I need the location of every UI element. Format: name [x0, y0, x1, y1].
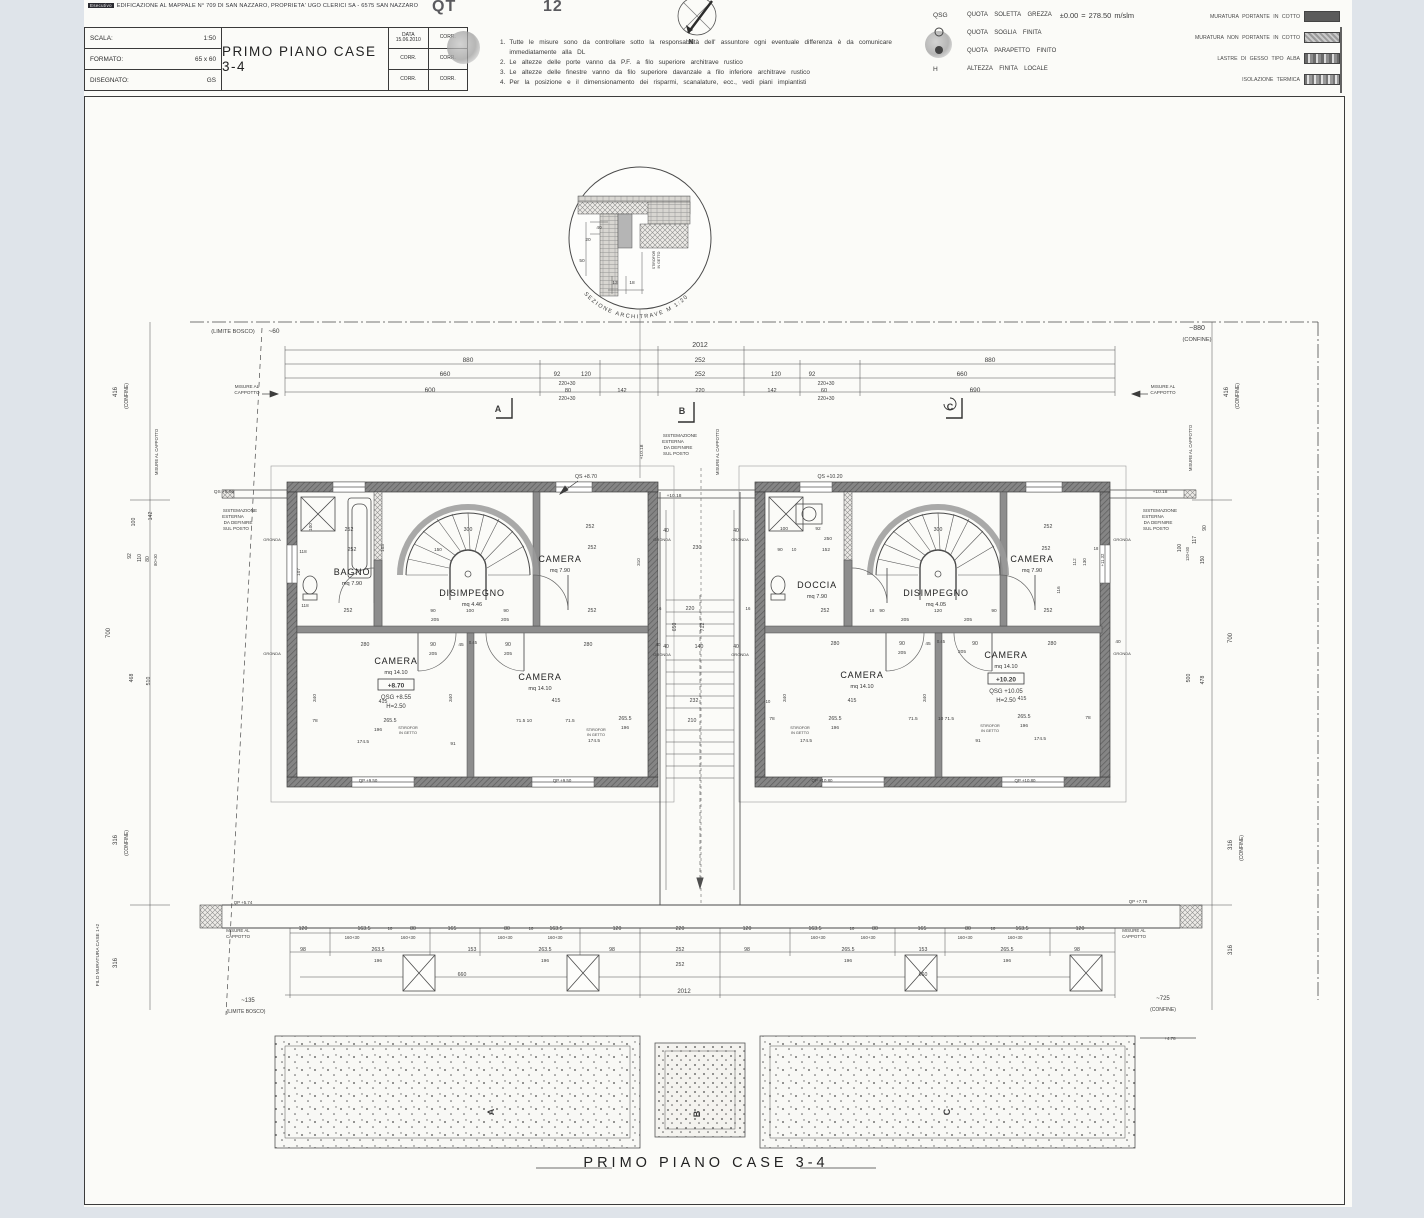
- plan-label: 280: [1048, 641, 1057, 647]
- plan-label: 90: [503, 608, 509, 614]
- plan-label: GRONDA: [653, 537, 671, 542]
- plan-label: 205: [964, 617, 972, 623]
- room-name: BAGNO: [334, 567, 371, 577]
- plan-label: ~880: [1189, 325, 1205, 332]
- plan-label: 252: [1044, 524, 1053, 530]
- plan-label: 280: [584, 642, 593, 648]
- plan-label: C: [942, 1108, 952, 1115]
- plan-label: 40: [733, 528, 739, 534]
- room-area: mq 7.90: [550, 568, 570, 574]
- plan-label: IN GETTO: [587, 733, 605, 737]
- plan-label: 478: [1200, 676, 1206, 685]
- plan-label: 153: [468, 947, 477, 953]
- plan-label: 700: [106, 627, 112, 638]
- plan-label: QP +10.80: [1014, 778, 1036, 783]
- plan-label: 252: [588, 545, 597, 551]
- plan-label: 265.5: [842, 947, 855, 953]
- plan-label: 150: [1200, 556, 1206, 565]
- plan-label: 90: [1202, 525, 1208, 531]
- plan-label: 252: [586, 524, 595, 530]
- plan-label: 316: [1228, 944, 1234, 955]
- floor-plan-drawing: SEZIONE ARCHITRAVE M 1:20: [0, 0, 1424, 1218]
- quota-value: +10.20: [996, 677, 1016, 684]
- plan-label: 71.5: [908, 716, 918, 722]
- room-name: DOCCIA: [797, 580, 837, 590]
- plan-label: 120: [743, 926, 752, 932]
- plan-label: 18: [629, 280, 635, 286]
- plan-label: ~725: [1156, 996, 1170, 1002]
- plan-label: 103: [380, 544, 385, 552]
- plan-label: 252: [348, 547, 357, 553]
- height-value: H=2.50: [386, 704, 406, 710]
- plan-label: 10: [766, 699, 771, 704]
- plan-label: 92: [815, 526, 821, 532]
- plan-label: +10.18: [667, 493, 682, 499]
- scanner-edge-bottom: [0, 1207, 1424, 1218]
- plan-label: 142: [767, 388, 776, 394]
- plan-label: (CONFINE): [1150, 1007, 1176, 1013]
- plan-label: 252: [676, 962, 685, 968]
- plan-label: STIROFOR: [980, 724, 1000, 728]
- plan-label: 10: [850, 926, 855, 931]
- plan-label: 196: [541, 958, 549, 964]
- plan-label: 118: [299, 549, 307, 554]
- plan-label: 163.5: [1016, 926, 1029, 932]
- plan-label: 0.45: [937, 639, 946, 644]
- footer-caption-group: PRIMO PIANO CASE 3-4: [536, 1155, 876, 1171]
- plan-label: 153: [919, 947, 928, 953]
- plan-label: GRONDA: [731, 652, 749, 657]
- plan-label: 468: [129, 674, 135, 683]
- plan-label: 80: [410, 926, 416, 932]
- leader-arrows: [262, 391, 1148, 494]
- plan-label: 650: [672, 623, 678, 632]
- scanner-edge-right: [1352, 0, 1424, 1218]
- scanner-edge-left: [0, 0, 84, 1218]
- plan-label: 163.5: [358, 926, 371, 932]
- plan-label: CAPPOTTO: [226, 934, 251, 939]
- plan-label: 340: [782, 694, 788, 702]
- plan-label: 220: [686, 606, 695, 612]
- plan-label: 300: [464, 527, 473, 533]
- plan-label: GRONDA: [1113, 537, 1131, 542]
- plan-label: N: [688, 39, 693, 46]
- plan-label: 660: [919, 972, 928, 978]
- plan-label: 120+30: [1185, 546, 1190, 561]
- plan-label: +10.18: [1153, 489, 1168, 495]
- plan-label: 340: [922, 694, 928, 702]
- plan-label: 174.5: [1034, 736, 1046, 742]
- plan-label: 80+30: [153, 553, 158, 565]
- plan-label: 71.5 10: [516, 718, 532, 724]
- plan-label: 110: [137, 554, 143, 562]
- plan-label: GRONDA: [1113, 651, 1131, 656]
- plan-label: 78: [1085, 715, 1091, 721]
- plan-label: 91: [975, 738, 981, 744]
- plan-label: 252: [821, 608, 830, 614]
- plan-label: +10.18: [639, 444, 645, 459]
- plan-label: DA DEFINIRE: [224, 520, 253, 525]
- plan-label: MISURE AL: [226, 928, 250, 933]
- plan-label: QP +10.80: [811, 778, 833, 783]
- plan-label: DA DEFINIRE: [1144, 520, 1173, 525]
- plan-label: 10 71.5: [938, 716, 954, 722]
- plan-label: 120: [581, 372, 592, 378]
- room-area: mq 14.10: [850, 684, 873, 690]
- room-area: mq 14.10: [528, 686, 551, 692]
- plan-label: ESTERNA: [222, 514, 245, 519]
- plan-label: 205: [429, 651, 437, 657]
- plan-label: 196: [621, 725, 629, 731]
- plan-label: 2012: [677, 989, 691, 995]
- plan-label: 660: [440, 371, 451, 378]
- plan-label: 100: [1177, 544, 1183, 553]
- plan-label: (CONFINE): [1183, 337, 1212, 343]
- plan-label: QP +9.50: [553, 778, 572, 783]
- plan-label: 80: [145, 556, 151, 562]
- plan-label: QS +8.70: [575, 474, 597, 480]
- plan-label: 40: [1115, 639, 1121, 645]
- plan-label: 205: [901, 617, 909, 623]
- plan-label: 10: [388, 926, 393, 931]
- plan-label: 92: [809, 372, 816, 378]
- plan-label: 120: [299, 926, 308, 932]
- plan-label: 205: [504, 651, 512, 657]
- plan-label: 252: [588, 608, 597, 614]
- plan-label: 98: [300, 947, 306, 953]
- drawing-frame: [85, 27, 1345, 1205]
- plan-label: IN GETTO: [981, 729, 999, 733]
- plan-label: 150: [434, 547, 442, 552]
- plan-label: MISURE AL CAPPOTTO: [715, 428, 720, 475]
- plan-label: 163.5: [809, 926, 822, 932]
- plan-label: +4.78: [1164, 1036, 1176, 1041]
- architrave-detail: SEZIONE ARCHITRAVE M 1:20: [569, 167, 711, 478]
- plan-label: A: [486, 1108, 496, 1115]
- plan-label: 160+30: [811, 935, 826, 940]
- plan-label: 340: [312, 694, 318, 702]
- plan-label: 107: [296, 568, 301, 576]
- plan-label: 205: [501, 617, 509, 623]
- north-compass-icon: [678, 0, 716, 35]
- plan-label: 280: [831, 641, 840, 647]
- plan-label: 252: [1042, 546, 1051, 552]
- plan-label: IN GETTO: [657, 251, 661, 268]
- plan-label: 142: [148, 512, 154, 521]
- plan-label: 142: [617, 388, 626, 394]
- room-name: DISIMPEGNO: [439, 588, 505, 598]
- plan-label: 18: [870, 608, 875, 613]
- plan-label: 265.5: [619, 716, 632, 722]
- qsg-value: QSG +8.55: [381, 695, 412, 701]
- plan-label: 90: [991, 608, 997, 614]
- plan-label: B: [679, 406, 686, 416]
- plan-label: 415: [1018, 696, 1027, 702]
- plan-label: 263.5: [372, 947, 385, 953]
- house-casa-3: [287, 482, 658, 787]
- plan-label: 196: [1003, 958, 1011, 964]
- plan-label: ESTERNA: [662, 439, 685, 444]
- plan-label: 165: [448, 926, 457, 932]
- plan-label: 98: [609, 947, 615, 953]
- plan-label: 174.5: [800, 738, 812, 744]
- plan-label: 13: [612, 280, 618, 286]
- plan-label: 880: [985, 357, 996, 364]
- plan-label: 265.5: [384, 718, 397, 724]
- plan-label: QP +7.78: [1129, 899, 1148, 904]
- plan-label: 510: [146, 677, 152, 686]
- plan-label: 20: [585, 237, 591, 243]
- plan-label: IN GETTO: [399, 731, 417, 735]
- plan-label: 880: [463, 357, 474, 364]
- plan-label: GRONDA: [263, 651, 281, 656]
- plan-label: 500: [1186, 674, 1192, 683]
- plan-label: CAPPOTTO: [1122, 934, 1147, 939]
- plan-label: 90: [430, 642, 436, 648]
- plan-label: 163.5: [550, 926, 563, 932]
- room-name: CAMERA: [518, 672, 561, 682]
- plan-label: 78: [312, 718, 318, 724]
- plan-label: 416: [113, 386, 119, 397]
- plan-label: 205: [898, 650, 906, 656]
- plan-label: 232: [690, 698, 699, 704]
- room-area: mq 14.10: [384, 670, 407, 676]
- plan-label: (CONFINE): [1239, 835, 1245, 861]
- plan-label: 100: [466, 608, 474, 614]
- plan-label: 220+30: [818, 381, 835, 387]
- plan-label: 250: [824, 536, 832, 542]
- room-name: CAMERA: [840, 670, 883, 680]
- plan-label: 316: [113, 834, 119, 845]
- plan-label: 700: [1228, 632, 1234, 643]
- plan-label: 160+30: [401, 935, 416, 940]
- room-name: DISIMPEGNO: [903, 588, 969, 598]
- plan-label: 45: [458, 642, 464, 648]
- plan-label: 100: [308, 523, 313, 531]
- plan-label: 160+30: [958, 935, 973, 940]
- plan-label: 80: [565, 388, 571, 394]
- plan-label: 416: [1224, 386, 1230, 397]
- plan-label: (LIMITE BOSCO): [227, 1009, 266, 1015]
- plan-label: MISURE AL CAPPOTTO: [1188, 424, 1193, 471]
- room-area: mq 7.90: [807, 594, 827, 600]
- plan-label: 40: [596, 225, 602, 231]
- plan-label: 196: [374, 958, 382, 964]
- pergola-posts: [403, 955, 1102, 991]
- plan-label: CAPPOTTO: [234, 390, 260, 395]
- plan-label: 160+30: [345, 935, 360, 940]
- plan-label: 10: [529, 926, 534, 931]
- plan-label: 160+30: [498, 935, 513, 940]
- plan-label: FILO MURATURA CASE 1+2: [95, 923, 101, 986]
- plan-label: 50: [579, 258, 585, 264]
- plan-label: 600: [425, 387, 436, 394]
- interior-walls: [765, 492, 1102, 777]
- plan-label: QS +10.20: [818, 474, 843, 480]
- plan-label: 300: [934, 527, 943, 533]
- plan-label: 252: [344, 608, 353, 614]
- plan-label: 2012: [692, 342, 708, 349]
- section-markers: [470, 398, 991, 1117]
- plan-label: 265.5: [1018, 714, 1031, 720]
- room-area: mq 4.05: [926, 602, 946, 608]
- room-area: mq 4.46: [462, 602, 482, 608]
- plan-label: MISURE AL: [1122, 928, 1146, 933]
- plan-label: 252: [345, 527, 354, 533]
- plan-label: (CONFINE): [124, 383, 130, 409]
- plan-label: 40: [663, 644, 669, 650]
- plan-label: ESTERNA: [1142, 514, 1165, 519]
- plan-label: 263.5: [539, 947, 552, 953]
- plan-label: 316: [1228, 839, 1234, 850]
- plan-label: 230: [693, 545, 702, 551]
- plan-label: 220: [676, 926, 685, 932]
- plan-label: A: [495, 404, 502, 414]
- plan-label: 90: [879, 608, 885, 614]
- plan-label: 112: [1072, 558, 1077, 566]
- plan-label: 196: [1020, 723, 1028, 729]
- plan-label: 316: [113, 957, 119, 968]
- plan-label: 40: [733, 644, 739, 650]
- window: [287, 482, 594, 787]
- plan-label: 660: [957, 371, 968, 378]
- plan-label: SUL POSTO: [1143, 526, 1169, 531]
- terraces: [275, 1036, 1135, 1148]
- plan-label: 252: [676, 947, 685, 953]
- plan-label: 165: [918, 926, 927, 932]
- plan-label: GRONDA: [731, 537, 749, 542]
- plan-label: 80: [504, 926, 510, 932]
- plan-label: 90: [899, 641, 905, 647]
- plan-label: 91: [450, 741, 456, 747]
- plan-label: 100: [131, 518, 137, 527]
- plan-label: (CONFINE): [124, 830, 130, 856]
- plan-label: 117: [1192, 536, 1198, 544]
- plan-label: 90: [505, 642, 511, 648]
- plan-label: 196: [374, 727, 382, 733]
- plan-label: 265.5: [1001, 947, 1014, 953]
- plan-label: 16: [657, 606, 662, 611]
- plan-label: 90: [430, 608, 436, 614]
- plan-label: 78: [769, 716, 775, 722]
- plan-label: 140: [695, 644, 704, 650]
- plan-label: 10: [991, 926, 996, 931]
- room-name: CAMERA: [1010, 554, 1053, 564]
- external-stair-corridor: [660, 492, 740, 905]
- plan-label: +11.32: [1100, 553, 1105, 566]
- plan-label: 98: [1074, 947, 1080, 953]
- plan-label: IN GETTO: [791, 731, 809, 735]
- plan-label: GRONDA: [653, 652, 671, 657]
- plan-label: 690: [970, 387, 981, 394]
- plan-label: 18: [1094, 546, 1099, 551]
- quota-value: +8.70: [388, 683, 405, 690]
- plan-label: 220+30: [559, 381, 576, 387]
- plan-label: STIROFOR: [652, 250, 656, 269]
- plan-label: 16: [746, 606, 751, 611]
- plan-label: 60: [821, 388, 827, 394]
- plan-label: B: [692, 1110, 702, 1117]
- plan-label: SISTEMAZIONE: [1143, 508, 1177, 513]
- plan-label: 174.5: [588, 738, 600, 744]
- plan-label: 415: [552, 698, 561, 704]
- room-name: CAMERA: [538, 554, 581, 564]
- plan-label: CAPPOTTO: [1150, 390, 1176, 395]
- plan-label: 265.5: [829, 716, 842, 722]
- plan-label: 310: [636, 558, 641, 566]
- plan-label: SISTEMAZIONE: [223, 508, 257, 513]
- plan-label: MISURE AL CAPPOTTO: [154, 428, 159, 475]
- plan-label: 120: [1076, 926, 1085, 932]
- plan-label: 160+30: [861, 935, 876, 940]
- plan-label: 220+30: [818, 396, 835, 402]
- plan-label: 92: [554, 372, 561, 378]
- plan-label: 252: [695, 371, 706, 378]
- plan-label: 10: [792, 547, 797, 552]
- plan-label: 45: [925, 641, 931, 647]
- footer-caption: PRIMO PIANO CASE 3-4: [583, 1155, 828, 1171]
- plan-label: MISURE AL: [1151, 384, 1176, 389]
- plan-label: 220: [695, 388, 704, 394]
- height-value: H=2.50: [996, 698, 1016, 704]
- room-area: mq 7.90: [1022, 568, 1042, 574]
- plan-label: 660: [458, 972, 467, 978]
- plan-label: 80: [965, 926, 971, 932]
- plan-label: 415: [848, 698, 857, 704]
- plan-label: 130: [1082, 558, 1087, 566]
- plan-label: 80: [872, 926, 878, 932]
- plan-label: 174.5: [357, 739, 369, 745]
- plan-label: 205: [431, 617, 439, 623]
- plan-label: 118: [301, 603, 309, 608]
- plan-label: (LIMITE BOSCO): [211, 329, 255, 335]
- plan-label: 160+30: [548, 935, 563, 940]
- plan-label: 90: [972, 641, 978, 647]
- plan-label: GRONDA: [263, 537, 281, 542]
- plan-label: 196: [844, 958, 852, 964]
- plan-label: SISTEMAZIONE: [663, 433, 697, 438]
- plan-label: QS +8.65: [214, 489, 235, 495]
- plan-label: 210: [688, 718, 697, 724]
- plan-label: QP +5.74: [234, 900, 253, 905]
- plan-label: STIROFOR: [586, 728, 606, 732]
- plan-label: 71.5: [565, 718, 575, 724]
- plan-label: MISURE AL: [235, 384, 260, 389]
- plan-label: 196: [831, 725, 839, 731]
- plan-label: ~60: [268, 328, 279, 335]
- plan-label: 92: [127, 553, 133, 559]
- room-area: mq 14.10: [994, 664, 1017, 670]
- plan-label: 252: [1044, 608, 1053, 614]
- plan-label: 205: [958, 649, 966, 655]
- plan-label: SUL POSTO: [223, 526, 249, 531]
- plan-label: STIROFOR: [398, 726, 418, 730]
- plan-label: 252: [695, 357, 706, 364]
- plan-label: 40: [663, 528, 669, 534]
- plan-label: 120: [771, 372, 782, 378]
- plan-label: 120: [934, 608, 942, 614]
- plan-label: C: [947, 402, 954, 412]
- plan-label: 116: [1056, 586, 1061, 594]
- plan-label: STIROFOR: [790, 726, 810, 730]
- plan-label: 712: [700, 623, 706, 632]
- plan-label: 0.45: [469, 640, 478, 645]
- plan-label: 152: [822, 547, 830, 553]
- plan-label: ~135: [241, 998, 255, 1004]
- qsg-value: QSG +10.05: [989, 689, 1023, 695]
- plan-label: 220+30: [559, 396, 576, 402]
- room-area: mq 7.90: [342, 581, 362, 587]
